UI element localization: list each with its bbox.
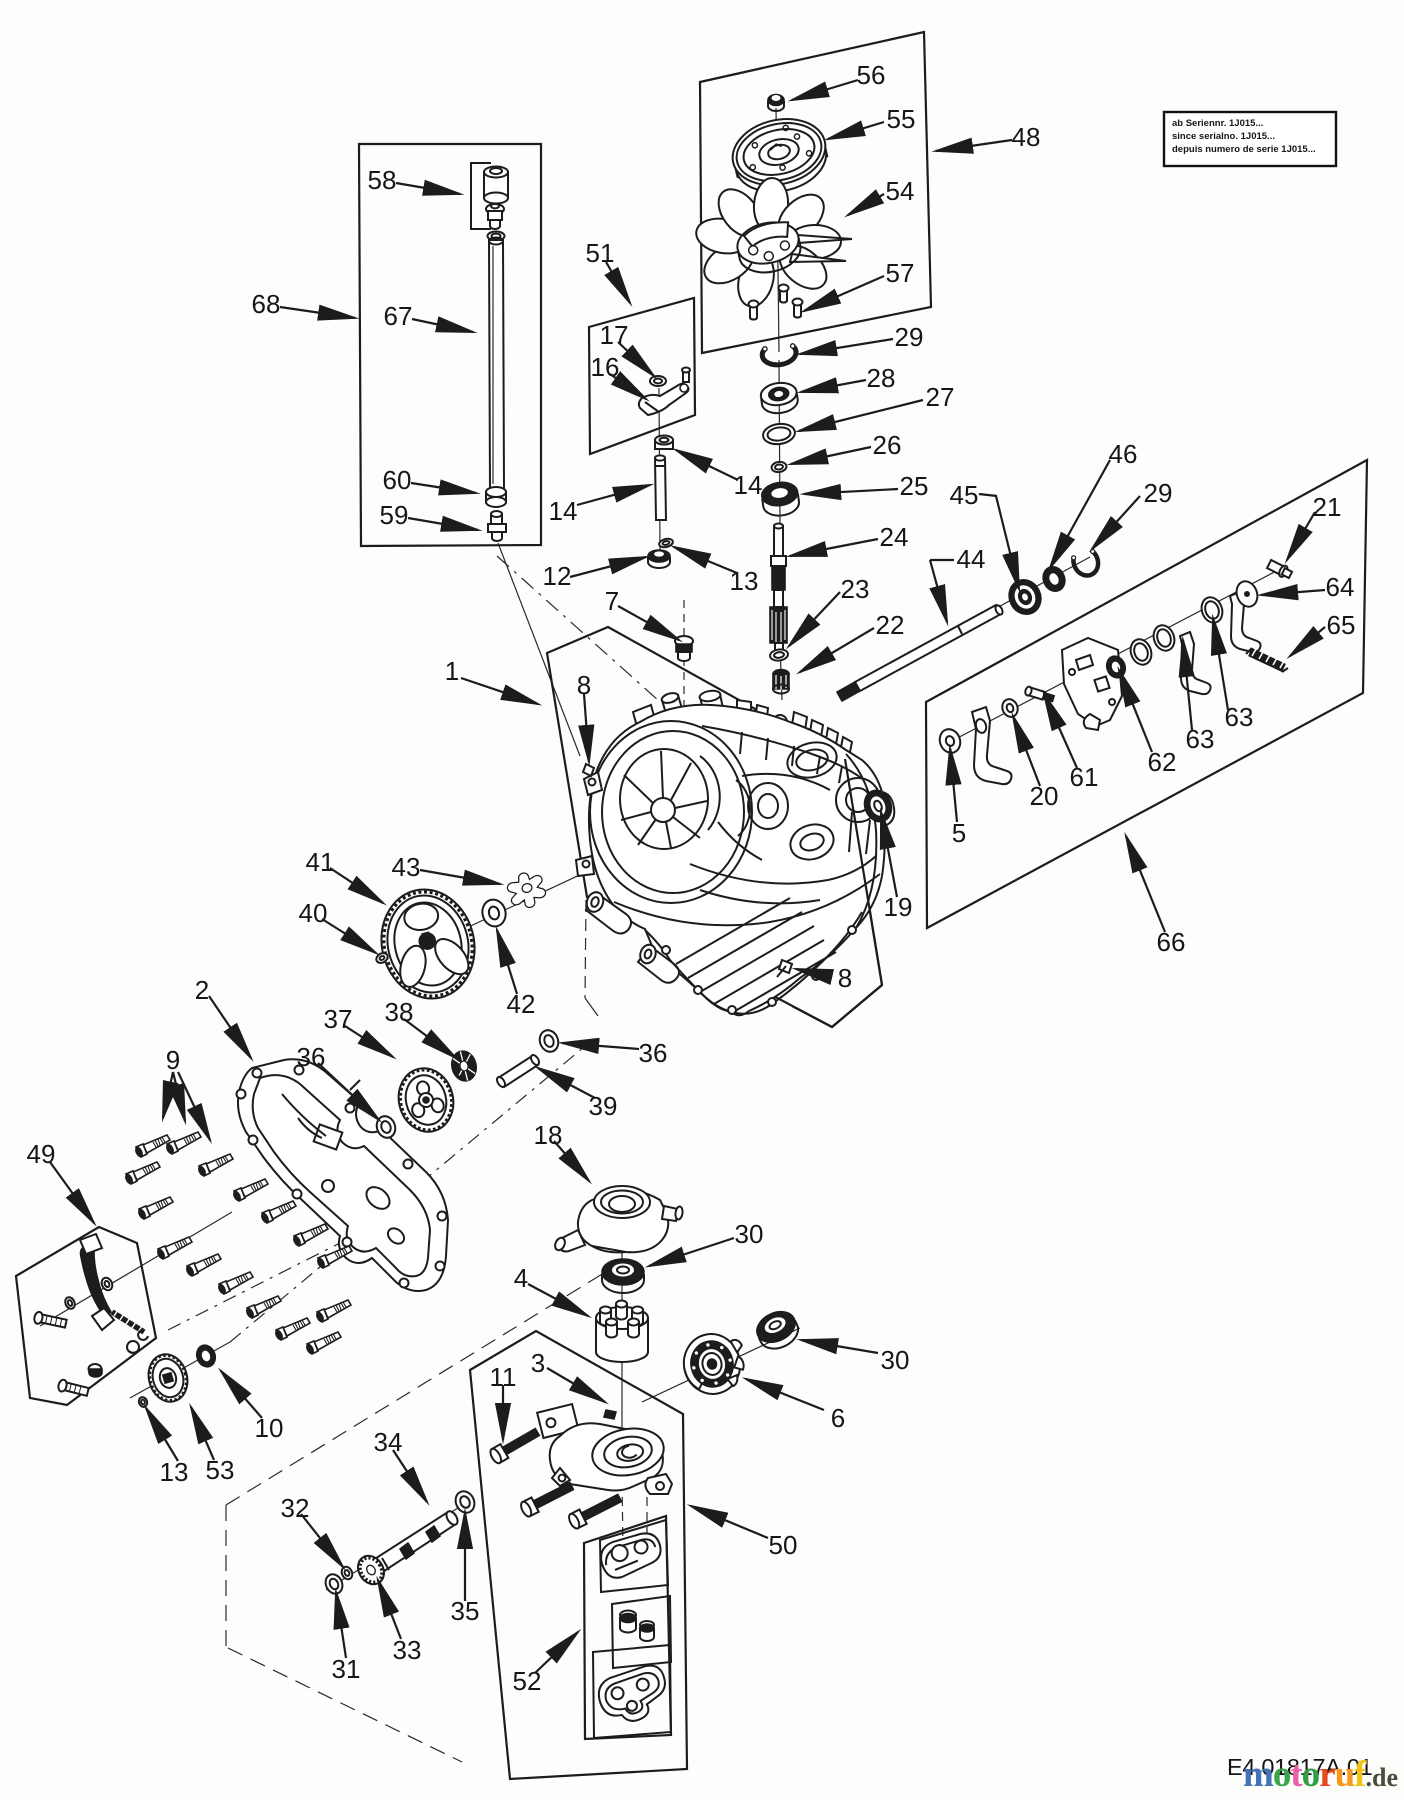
svg-text:66: 66: [1157, 927, 1186, 957]
svg-text:67: 67: [384, 301, 413, 331]
svg-text:31: 31: [332, 1654, 361, 1684]
svg-text:61: 61: [1070, 762, 1099, 792]
svg-text:17: 17: [600, 320, 629, 350]
svg-text:9: 9: [166, 1045, 180, 1075]
svg-text:25: 25: [900, 471, 929, 501]
svg-text:2: 2: [195, 975, 209, 1005]
svg-text:29: 29: [895, 322, 924, 352]
svg-text:58: 58: [368, 165, 397, 195]
svg-text:27: 27: [926, 382, 955, 412]
svg-text:7: 7: [605, 586, 619, 616]
svg-text:21: 21: [1313, 492, 1342, 522]
svg-text:10: 10: [255, 1413, 284, 1443]
svg-text:3: 3: [531, 1348, 545, 1378]
svg-text:13: 13: [160, 1457, 189, 1487]
svg-text:63: 63: [1186, 724, 1215, 754]
svg-text:42: 42: [507, 989, 536, 1019]
svg-text:30: 30: [881, 1345, 910, 1375]
svg-text:46: 46: [1109, 439, 1138, 469]
svg-text:24: 24: [880, 522, 909, 552]
svg-text:28: 28: [867, 363, 896, 393]
svg-text:50: 50: [769, 1530, 798, 1560]
svg-text:14: 14: [549, 496, 578, 526]
svg-text:48: 48: [1012, 122, 1041, 152]
svg-text:12: 12: [543, 561, 572, 591]
svg-text:54: 54: [886, 176, 915, 206]
svg-text:6: 6: [831, 1403, 845, 1433]
svg-text:40: 40: [299, 898, 328, 928]
svg-text:37: 37: [324, 1004, 353, 1034]
svg-text:63: 63: [1225, 702, 1254, 732]
svg-text:45: 45: [950, 480, 979, 510]
svg-text:30: 30: [735, 1219, 764, 1249]
svg-text:51: 51: [586, 238, 615, 268]
svg-text:56: 56: [857, 60, 886, 90]
svg-text:41: 41: [306, 847, 335, 877]
svg-text:57: 57: [886, 258, 915, 288]
svg-text:23: 23: [841, 574, 870, 604]
svg-text:65: 65: [1327, 610, 1356, 640]
svg-text:13: 13: [730, 566, 759, 596]
svg-text:14: 14: [734, 470, 763, 500]
svg-text:39: 39: [589, 1091, 618, 1121]
svg-text:64: 64: [1326, 572, 1355, 602]
svg-text:59: 59: [380, 500, 409, 530]
svg-text:68: 68: [252, 289, 281, 319]
svg-text:depuis numero de serie 1J015..: depuis numero de serie 1J015...: [1172, 144, 1316, 155]
svg-text:53: 53: [206, 1455, 235, 1485]
svg-text:since serialno. 1J015...: since serialno. 1J015...: [1172, 131, 1275, 142]
svg-text:1: 1: [445, 656, 459, 686]
svg-text:33: 33: [393, 1635, 422, 1665]
svg-text:20: 20: [1030, 781, 1059, 811]
svg-text:44: 44: [957, 544, 986, 574]
svg-text:36: 36: [639, 1038, 668, 1068]
svg-text:36: 36: [297, 1042, 326, 1072]
svg-text:26: 26: [873, 430, 902, 460]
svg-text:8: 8: [838, 963, 852, 993]
svg-text:43: 43: [392, 852, 421, 882]
svg-text:29: 29: [1144, 478, 1173, 508]
svg-text:60: 60: [383, 465, 412, 495]
svg-text:55: 55: [887, 104, 916, 134]
svg-text:34: 34: [374, 1427, 403, 1457]
svg-text:22: 22: [876, 610, 905, 640]
svg-text:ab Seriennr. 1J015...: ab Seriennr. 1J015...: [1172, 118, 1263, 129]
svg-text:5: 5: [952, 818, 966, 848]
svg-text:4: 4: [514, 1263, 528, 1293]
